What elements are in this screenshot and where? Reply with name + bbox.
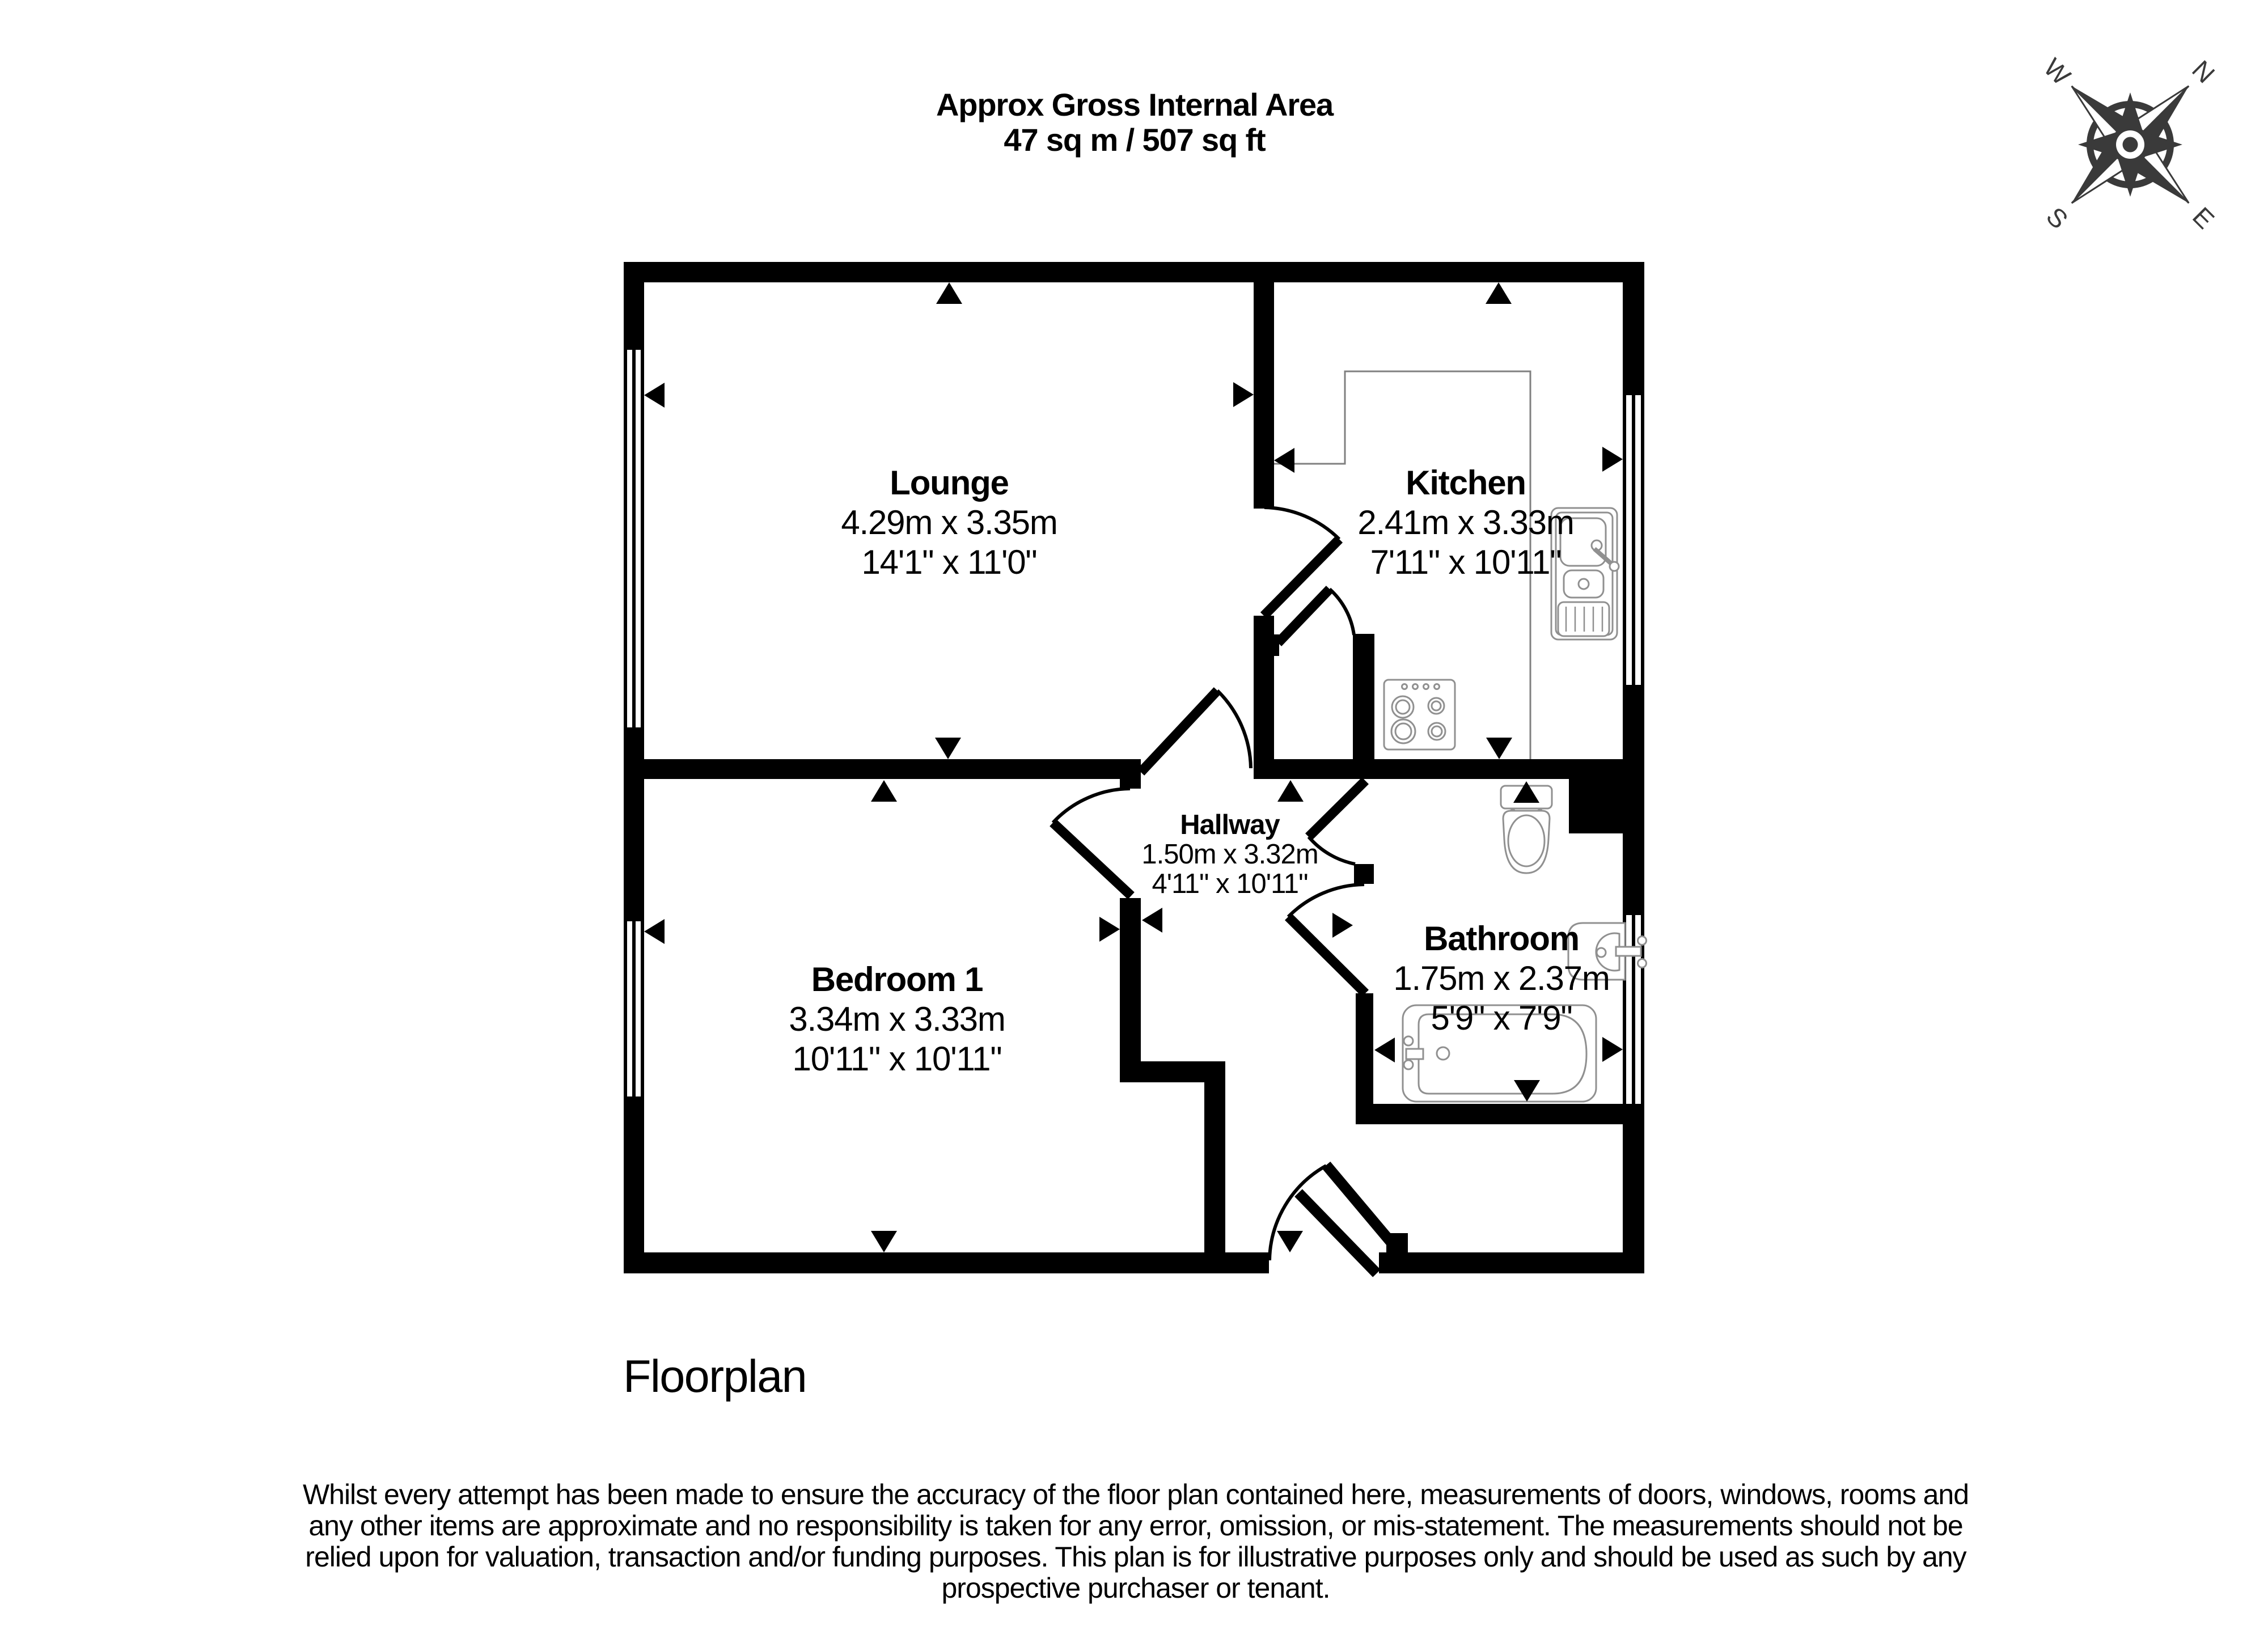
- svg-text:Hallway: Hallway: [1180, 810, 1280, 840]
- svg-text:5'9" x 7'9": 5'9" x 7'9": [1431, 999, 1572, 1037]
- svg-text:prospective purchaser or tenan: prospective purchaser or tenant.: [941, 1572, 1330, 1604]
- svg-text:Lounge: Lounge: [890, 464, 1008, 502]
- svg-text:10'11" x 10'11": 10'11" x 10'11": [793, 1040, 1002, 1078]
- svg-text:2.41m x 3.33m: 2.41m x 3.33m: [1357, 503, 1573, 541]
- svg-text:1.50m x 3.32m: 1.50m x 3.32m: [1141, 839, 1318, 870]
- svg-text:Bedroom 1: Bedroom 1: [811, 960, 983, 998]
- svg-text:any other items are approximat: any other items are approximate and no r…: [308, 1510, 1962, 1542]
- svg-text:relied upon for valuation, tra: relied upon for valuation, transaction a…: [305, 1541, 1966, 1573]
- svg-text:47 sq m / 507 sq ft: 47 sq m / 507 sq ft: [1004, 122, 1266, 158]
- svg-text:3.34m x 3.33m: 3.34m x 3.33m: [789, 1000, 1005, 1038]
- svg-text:Whilst every attempt has been: Whilst every attempt has been made to en…: [303, 1479, 1969, 1510]
- svg-text:Floorplan: Floorplan: [623, 1351, 806, 1402]
- svg-text:4'11" x 10'11": 4'11" x 10'11": [1152, 869, 1308, 899]
- svg-text:Bathroom: Bathroom: [1424, 920, 1579, 958]
- svg-text:7'11" x 10'11": 7'11" x 10'11": [1370, 543, 1562, 581]
- svg-text:Approx Gross Internal Area: Approx Gross Internal Area: [936, 87, 1334, 122]
- svg-text:1.75m x 2.37m: 1.75m x 2.37m: [1393, 959, 1609, 997]
- svg-text:14'1" x 11'0": 14'1" x 11'0": [861, 543, 1036, 581]
- svg-text:Kitchen: Kitchen: [1406, 464, 1526, 502]
- svg-text:4.29m x 3.35m: 4.29m x 3.35m: [841, 503, 1057, 541]
